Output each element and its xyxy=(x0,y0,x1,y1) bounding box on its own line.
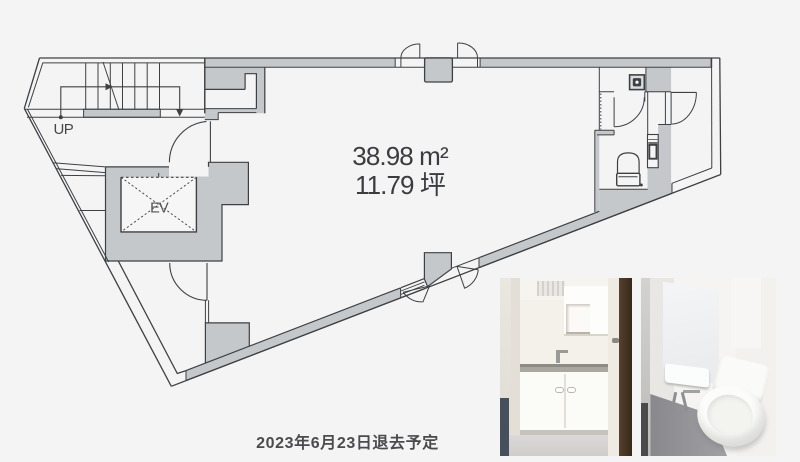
svg-text:EV: EV xyxy=(150,201,169,217)
svg-text:UP: UP xyxy=(53,121,73,138)
